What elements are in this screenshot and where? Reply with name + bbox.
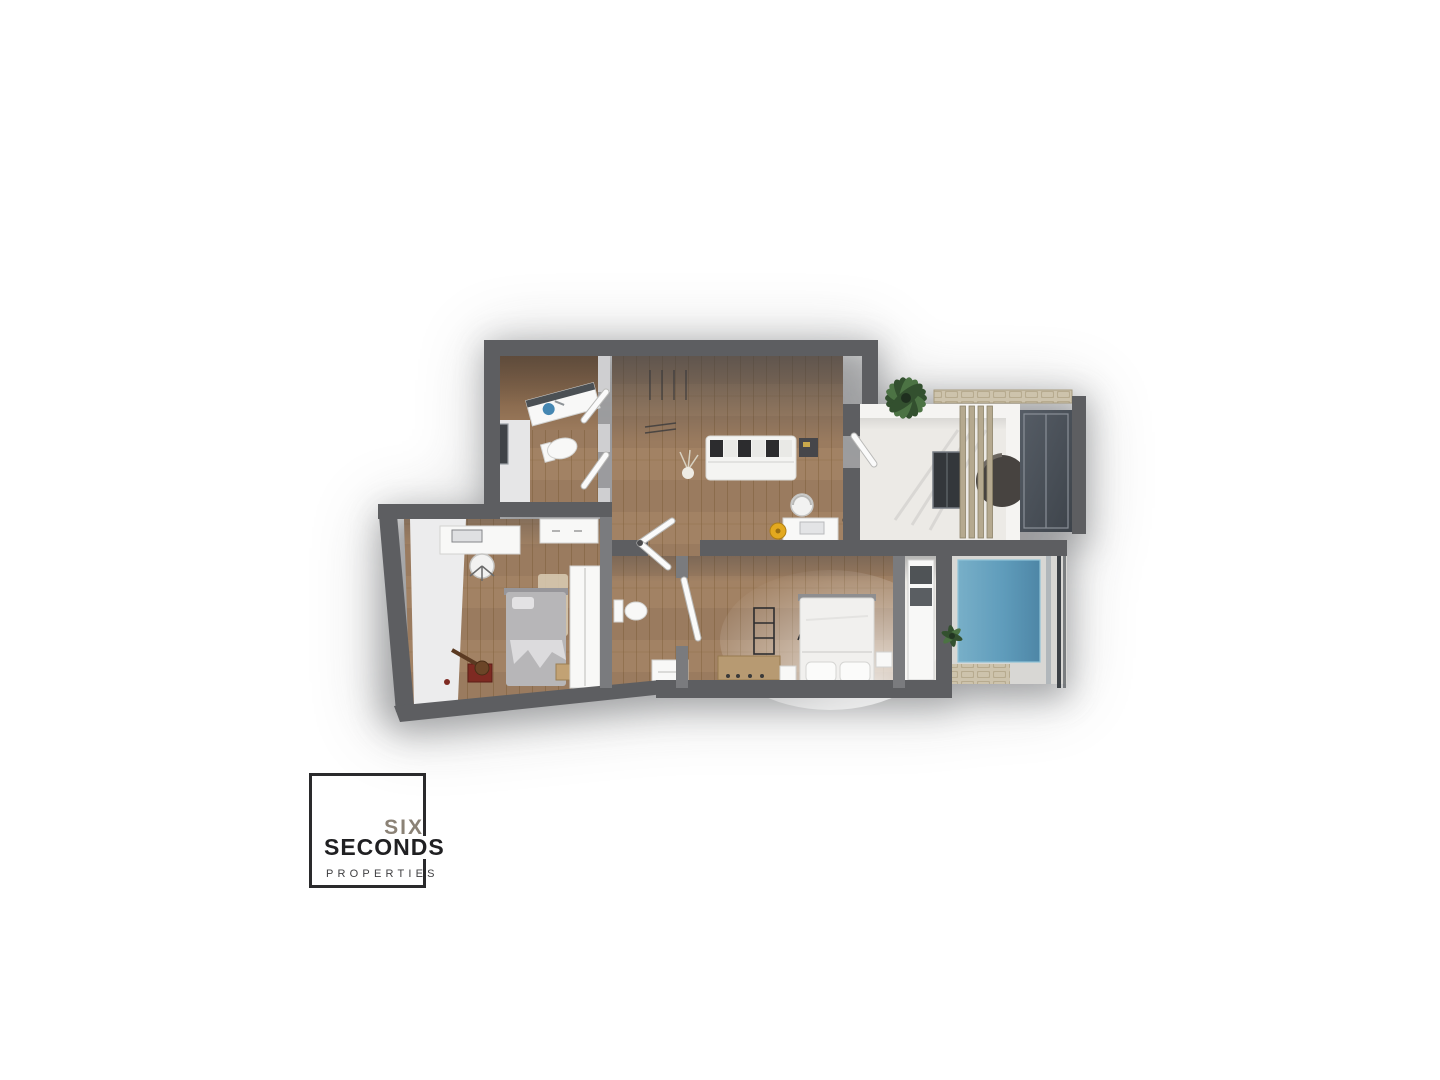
- plant-pot: [901, 393, 911, 403]
- pillow: [806, 662, 836, 682]
- wall-mid-c: [860, 540, 1067, 556]
- wall-living-right-a: [843, 404, 860, 436]
- sofa-cushion: [724, 440, 737, 457]
- wall-top-right: [862, 340, 878, 404]
- nightstand-left: [780, 666, 796, 682]
- nightstand-right: [876, 652, 892, 667]
- wall-top: [484, 340, 874, 356]
- sofa-cushion: [710, 440, 723, 457]
- sofa-cushion: [738, 440, 751, 457]
- wall-nook: [893, 556, 905, 688]
- wall-wing-divide: [496, 502, 612, 517]
- sofa-cushion: [780, 440, 792, 457]
- logo-word-seconds: SECONDS: [323, 836, 446, 859]
- inner-wall-right-top: [860, 404, 1020, 418]
- pergola-header: [934, 390, 1072, 403]
- pool-stone-edge: [944, 664, 1010, 684]
- bed-pillow: [512, 597, 534, 609]
- wall-bottom: [656, 680, 952, 698]
- wall-right-edge: [1072, 396, 1086, 534]
- sofa-cushion: [766, 440, 779, 457]
- wall-bath-left: [600, 517, 612, 688]
- wall-left-main: [484, 340, 500, 516]
- partition-a: [598, 356, 610, 392]
- laptop: [800, 522, 824, 534]
- wall-living-right-b: [843, 468, 860, 545]
- nook-wardrobe: [908, 560, 934, 680]
- floor-plan-page: SIX SECONDS PROPERTIES: [0, 0, 1440, 1080]
- floor-plan-render: [0, 0, 1440, 1080]
- logo-word-properties: PROPERTIES: [326, 869, 439, 880]
- toilet-2: [614, 600, 647, 622]
- wall-pool-left: [936, 548, 952, 698]
- pillow: [840, 662, 870, 682]
- monitor: [452, 530, 482, 542]
- pool: [958, 560, 1040, 662]
- desk-chair: [791, 494, 813, 516]
- sofa-cushion: [752, 440, 765, 457]
- ceiling-shadow-living: [612, 356, 843, 442]
- wall-mid-b: [700, 540, 860, 556]
- side-table-item: [803, 442, 810, 447]
- brand-logo: SIX SECONDS PROPERTIES: [309, 773, 426, 888]
- sofa: [706, 436, 796, 480]
- wall-bath-right-b: [676, 646, 688, 688]
- red-item: [444, 679, 450, 685]
- side-table: [799, 438, 818, 457]
- door-hinge: [637, 540, 643, 546]
- double-bed: [798, 594, 876, 688]
- shoe-console: [718, 656, 780, 680]
- partition-c: [598, 488, 610, 502]
- partition-b: [598, 424, 610, 452]
- wall-bath-right-a: [676, 556, 688, 578]
- dresser: [540, 519, 598, 543]
